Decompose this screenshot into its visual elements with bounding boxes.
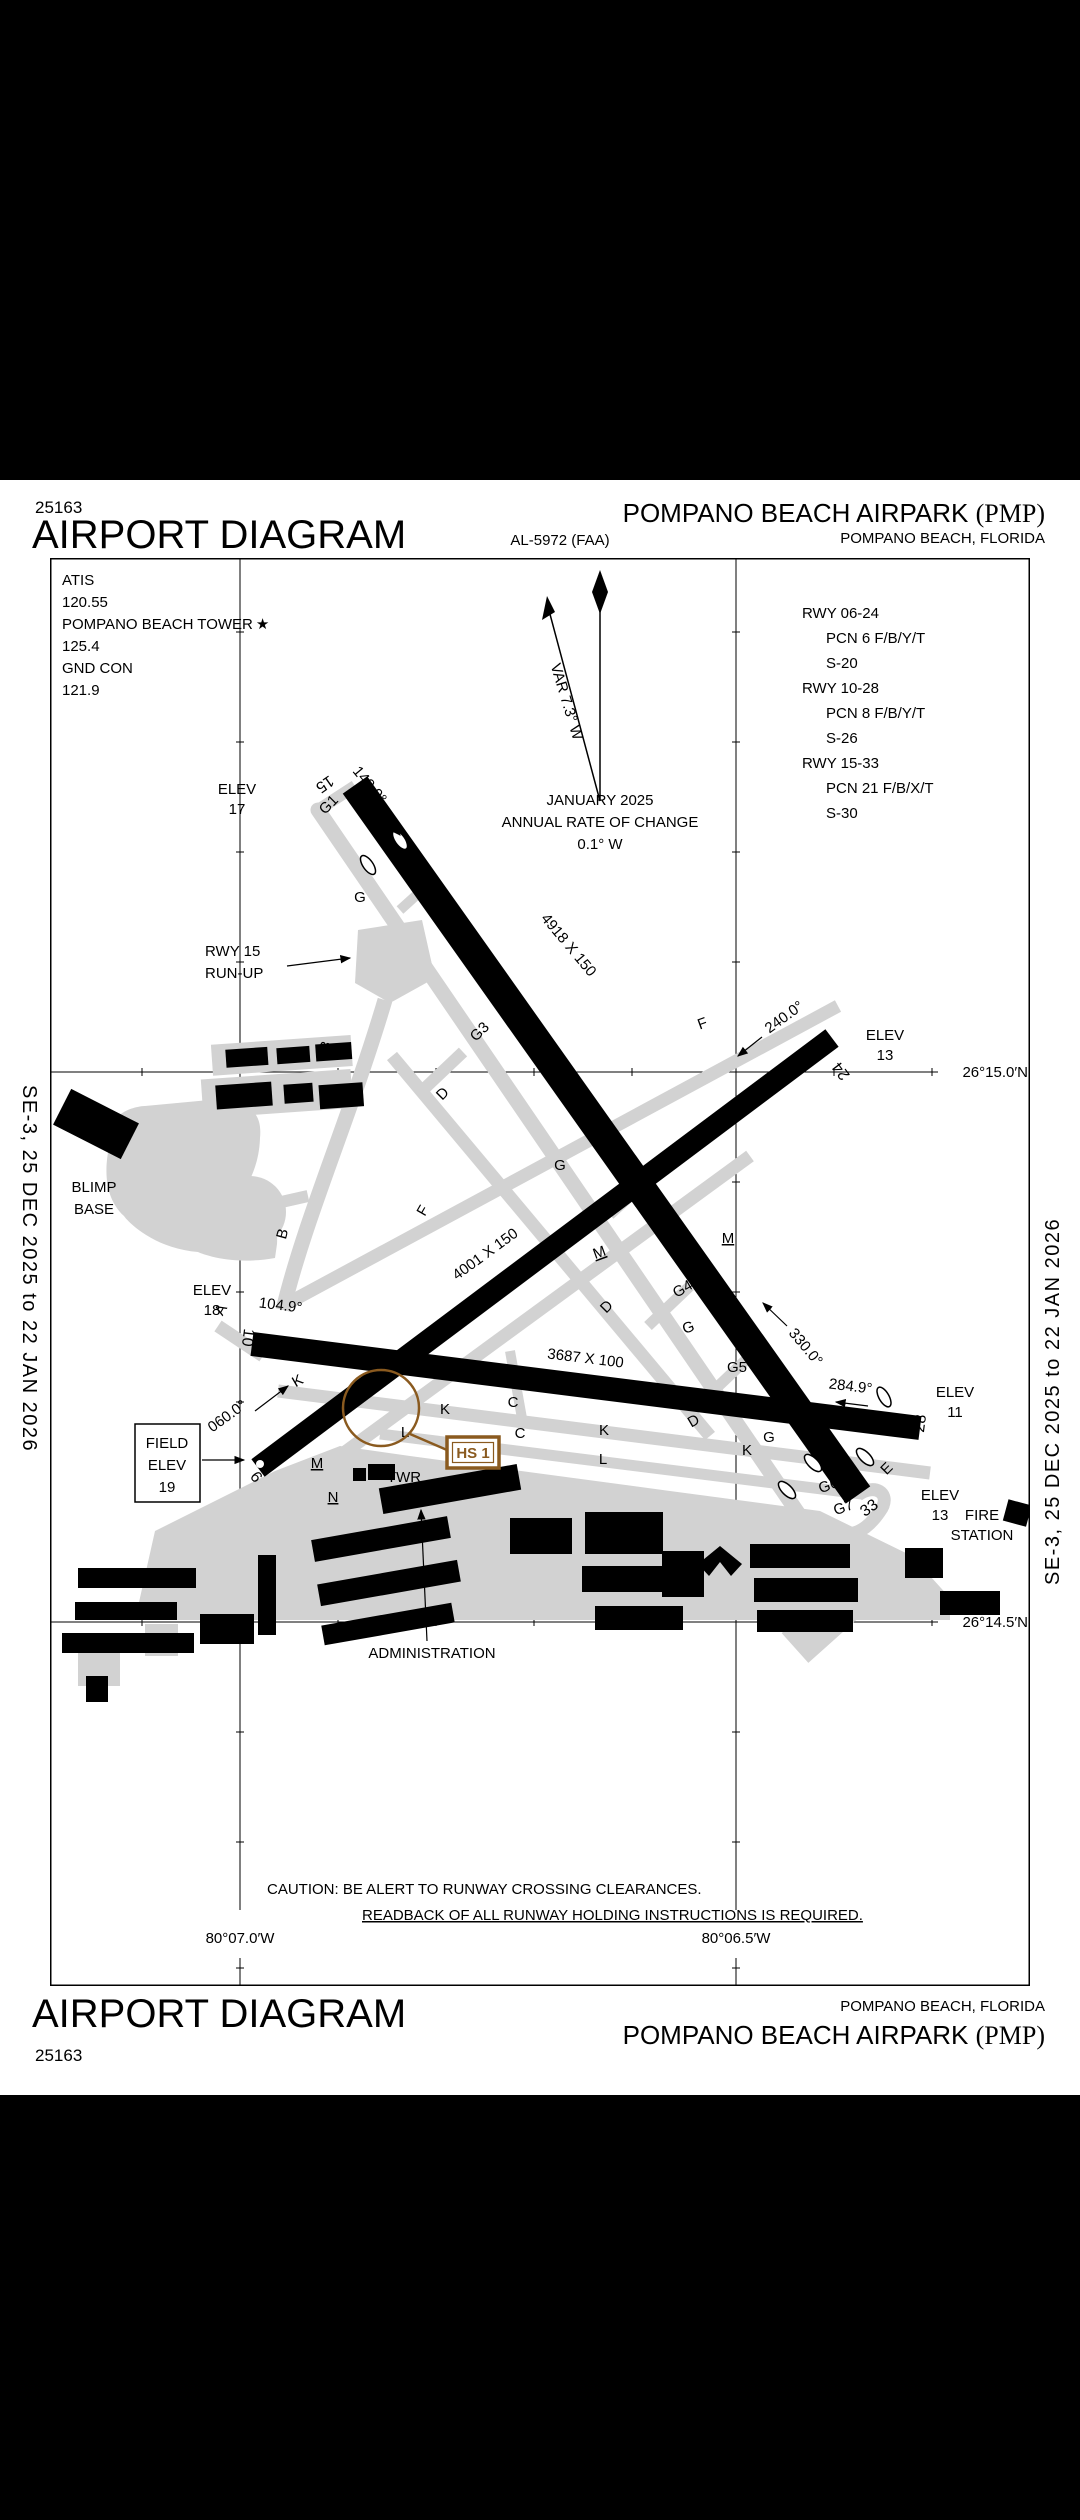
ground-freq: 121.9 bbox=[62, 682, 100, 699]
page-title-top: AIRPORT DIAGRAM bbox=[32, 513, 406, 558]
rwy-1533-pcn: PCN 21 F/B/X/T bbox=[826, 780, 934, 797]
north-arrow: VAR 7.3° W bbox=[542, 570, 608, 801]
svg-text:FIRE: FIRE bbox=[965, 1507, 999, 1524]
rwy-1028-pcn: PCN 8 F/B/Y/T bbox=[826, 705, 925, 722]
airport-city-top: POMPANO BEACH, FLORIDA bbox=[840, 530, 1045, 547]
true-north-diamond bbox=[592, 570, 608, 614]
chart-number-bottom: 25163 bbox=[35, 2046, 82, 2066]
runway-data-box: RWY 06-24 PCN 6 F/B/Y/T S-20 RWY 10-28 P… bbox=[802, 605, 934, 822]
north-aprons bbox=[201, 1035, 364, 1118]
svg-text:0.1° W: 0.1° W bbox=[577, 836, 623, 853]
dim-10-28: 3687 X 100 bbox=[546, 1345, 624, 1371]
edition-left: SE-3, 25 DEC 2025 to 22 JAN 2026 bbox=[17, 1085, 40, 1452]
svg-text:ANNUAL RATE OF CHANGE: ANNUAL RATE OF CHANGE bbox=[502, 814, 699, 831]
procedure-id: AL-5972 (FAA) bbox=[455, 532, 665, 549]
svg-text:BASE: BASE bbox=[74, 1201, 114, 1218]
field-elev-box: FIELD ELEV 19 bbox=[135, 1424, 244, 1502]
svg-text:F: F bbox=[695, 1014, 709, 1033]
annual-rate-block: JANUARY 2025 ANNUAL RATE OF CHANGE 0.1° … bbox=[502, 792, 699, 853]
svg-text:ELEV: ELEV bbox=[193, 1282, 231, 1299]
svg-text:284.9°: 284.9° bbox=[828, 1375, 873, 1397]
lat-label-top: 26°15.0′N bbox=[962, 1064, 1028, 1081]
svg-text:K: K bbox=[599, 1422, 609, 1439]
svg-text:M: M bbox=[722, 1230, 735, 1247]
svg-text:060.0°: 060.0° bbox=[205, 1397, 250, 1436]
airport-name-top: POMPANO BEACH AIRPARK (PMP) bbox=[623, 498, 1045, 529]
rwy-24-number: 24 bbox=[829, 1058, 853, 1083]
svg-text:11: 11 bbox=[947, 1404, 963, 1421]
comm-box: ATIS 120.55 POMPANO BEACH TOWER★ 125.4 G… bbox=[62, 572, 269, 699]
svg-text:G: G bbox=[554, 1157, 566, 1174]
svg-text:17: 17 bbox=[229, 801, 246, 818]
svg-text:G: G bbox=[354, 889, 366, 906]
tower-label-map: TWR bbox=[387, 1469, 421, 1486]
rwy-0624-s: S-20 bbox=[826, 655, 858, 672]
svg-text:ELEV: ELEV bbox=[148, 1457, 186, 1474]
svg-text:18: 18 bbox=[204, 1302, 221, 1319]
airport-city-bottom: POMPANO BEACH, FLORIDA bbox=[840, 1998, 1045, 2015]
svg-text:CAUTION: BE ALERT TO RUNWAY CR: CAUTION: BE ALERT TO RUNWAY CROSSING CLE… bbox=[267, 1881, 702, 1898]
dim-15-33: 4918 X 150 bbox=[537, 910, 599, 980]
variation-label: VAR 7.3° W bbox=[547, 661, 587, 742]
graticule bbox=[50, 558, 938, 1985]
rwy-0624-label: RWY 06-24 bbox=[802, 605, 879, 622]
svg-text:L: L bbox=[599, 1451, 607, 1468]
taxiway-g3 bbox=[425, 1052, 463, 1088]
rwy-1028-label: RWY 10-28 bbox=[802, 680, 879, 697]
caution-note: CAUTION: BE ALERT TO RUNWAY CROSSING CLE… bbox=[267, 1881, 863, 1924]
svg-text:JANUARY 2025: JANUARY 2025 bbox=[546, 792, 653, 809]
rwy-15-number: 15 bbox=[312, 772, 336, 796]
rwy-0624-pcn: PCN 6 F/B/Y/T bbox=[826, 630, 925, 647]
administration-label: ADMINISTRATION bbox=[368, 1645, 495, 1662]
svg-text:13: 13 bbox=[932, 1507, 949, 1524]
edition-right: SE-3, 25 DEC 2025 to 22 JAN 2026 bbox=[1042, 1218, 1065, 1585]
svg-text:G5: G5 bbox=[727, 1359, 747, 1376]
svg-text:ELEV: ELEV bbox=[936, 1384, 974, 1401]
rwy-1028-s: S-26 bbox=[826, 730, 858, 747]
tower-label: POMPANO BEACH TOWER★ bbox=[62, 616, 269, 633]
hot-spot-label: HS 1 bbox=[456, 1445, 489, 1462]
rwy-1533-s: S-30 bbox=[826, 805, 858, 822]
lat-label-bottom: 26°14.5′N bbox=[962, 1614, 1028, 1631]
fire-station-building bbox=[1003, 1499, 1030, 1526]
svg-text:ELEV: ELEV bbox=[921, 1487, 959, 1504]
svg-text:RUN-UP: RUN-UP bbox=[205, 965, 263, 982]
svg-text:C: C bbox=[508, 1394, 519, 1411]
airport-diagram: 26°15.0′N 26°14.5′N 80°07.0′W 80°06.5′W bbox=[50, 558, 1030, 1986]
lon-label-left: 80°07.0′W bbox=[206, 1930, 276, 1947]
rwy-28-number: 28 bbox=[911, 1413, 930, 1433]
tower-freq: 125.4 bbox=[62, 638, 100, 655]
phone-screen: 25163 AIRPORT DIAGRAM AL-5972 (FAA) POMP… bbox=[0, 0, 1080, 2520]
blimp-hangar bbox=[53, 1089, 139, 1159]
svg-text:ELEV: ELEV bbox=[218, 781, 256, 798]
svg-text:G7: G7 bbox=[831, 1496, 856, 1519]
svg-text:F: F bbox=[413, 1203, 432, 1219]
lon-label-right: 80°06.5′W bbox=[702, 1930, 772, 1947]
svg-text:STATION: STATION bbox=[951, 1527, 1014, 1544]
svg-text:M: M bbox=[311, 1455, 324, 1472]
svg-text:BLIMP: BLIMP bbox=[71, 1179, 116, 1196]
runway-06-threshold-dot bbox=[256, 1460, 264, 1468]
svg-text:K: K bbox=[440, 1401, 450, 1418]
rwy-10-number: 10 bbox=[238, 1328, 257, 1348]
svg-text:19: 19 bbox=[159, 1479, 176, 1496]
svg-text:READBACK OF ALL RUNWAY HOLDING: READBACK OF ALL RUNWAY HOLDING INSTRUCTI… bbox=[362, 1907, 863, 1924]
magnetic-north-arrowhead bbox=[542, 596, 555, 620]
svg-text:C: C bbox=[515, 1425, 526, 1442]
beacon-star: ☆ bbox=[401, 1613, 414, 1630]
airport-name-bottom: POMPANO BEACH AIRPARK (PMP) bbox=[623, 2020, 1045, 2051]
svg-text:ELEV: ELEV bbox=[866, 1027, 904, 1044]
atis-freq: 120.55 bbox=[62, 594, 108, 611]
svg-text:G: G bbox=[763, 1429, 775, 1446]
airport-diagram-page: 25163 AIRPORT DIAGRAM AL-5972 (FAA) POMP… bbox=[0, 480, 1080, 2095]
rwy-1533-label: RWY 15-33 bbox=[802, 755, 879, 772]
ground-label: GND CON bbox=[62, 660, 133, 677]
svg-text:K: K bbox=[742, 1442, 752, 1459]
svg-text:FIELD: FIELD bbox=[146, 1435, 189, 1452]
svg-text:RWY 15: RWY 15 bbox=[205, 943, 260, 960]
svg-text:330.0°: 330.0° bbox=[785, 1325, 826, 1369]
svg-text:N: N bbox=[328, 1489, 339, 1506]
svg-text:13: 13 bbox=[877, 1047, 894, 1064]
atis-label: ATIS bbox=[62, 572, 94, 589]
page-title-bottom: AIRPORT DIAGRAM bbox=[32, 1992, 406, 2037]
diagram-border bbox=[51, 559, 1030, 1986]
